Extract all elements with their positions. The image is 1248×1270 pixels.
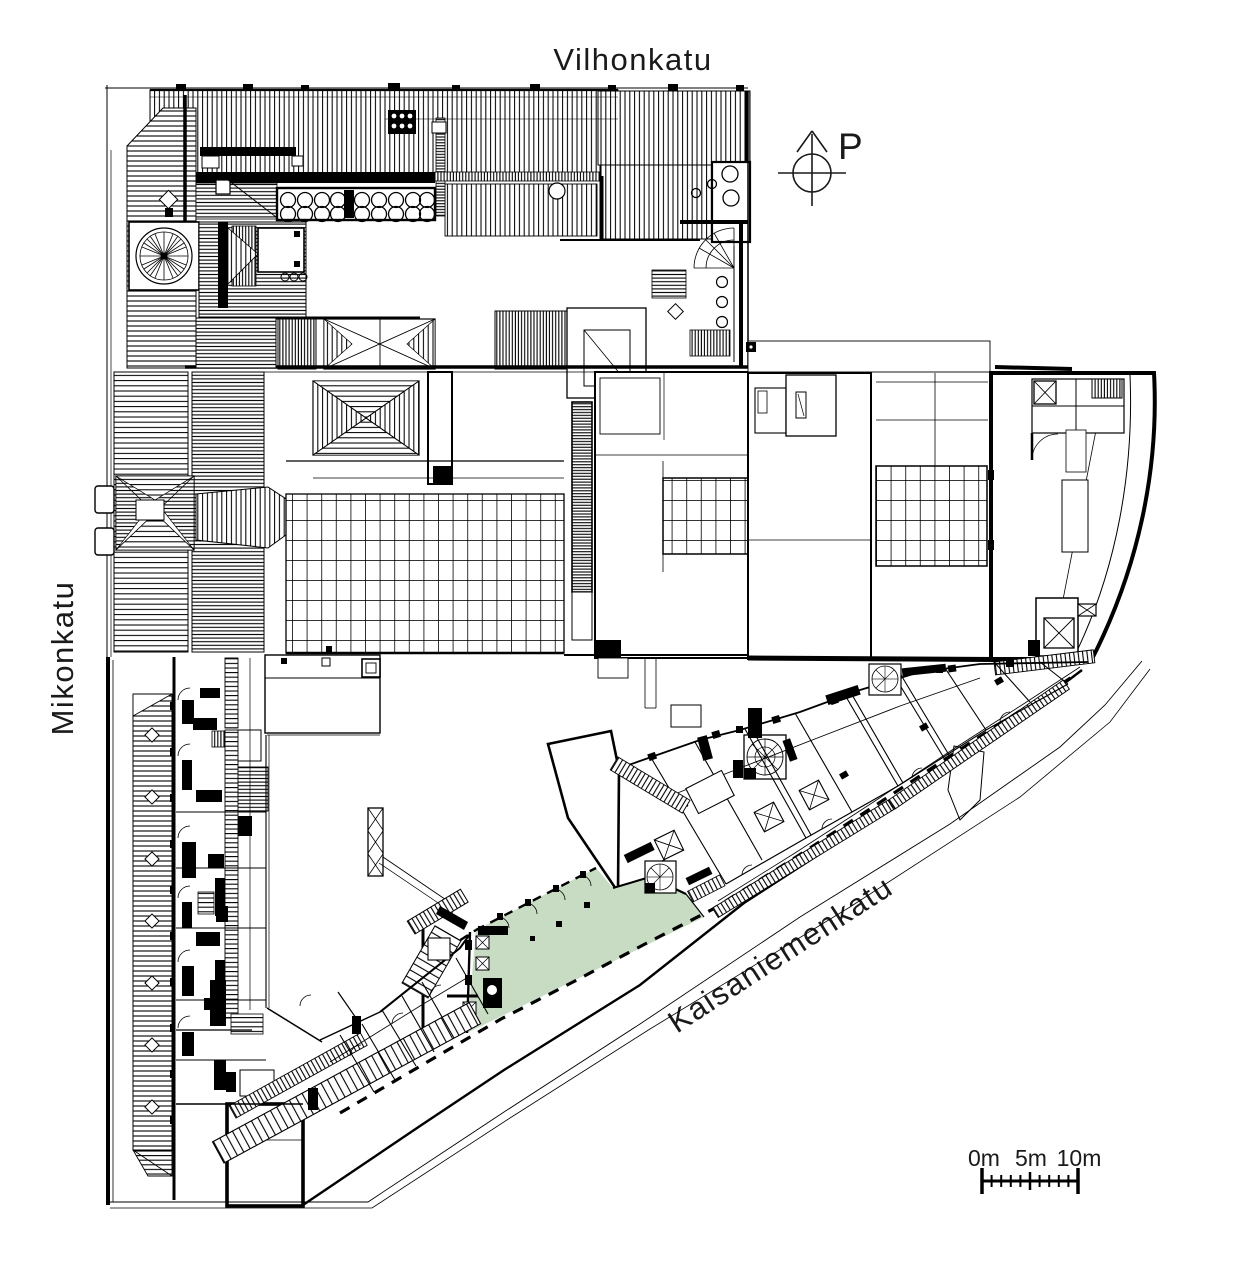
svg-text:Mikonkatu: Mikonkatu (45, 581, 80, 736)
svg-text:Vilhonkatu: Vilhonkatu (553, 42, 712, 77)
svg-text:5m: 5m (1015, 1145, 1047, 1171)
svg-text:10m: 10m (1057, 1145, 1102, 1171)
svg-text:0m: 0m (968, 1145, 1000, 1171)
svg-text:P: P (838, 126, 863, 167)
